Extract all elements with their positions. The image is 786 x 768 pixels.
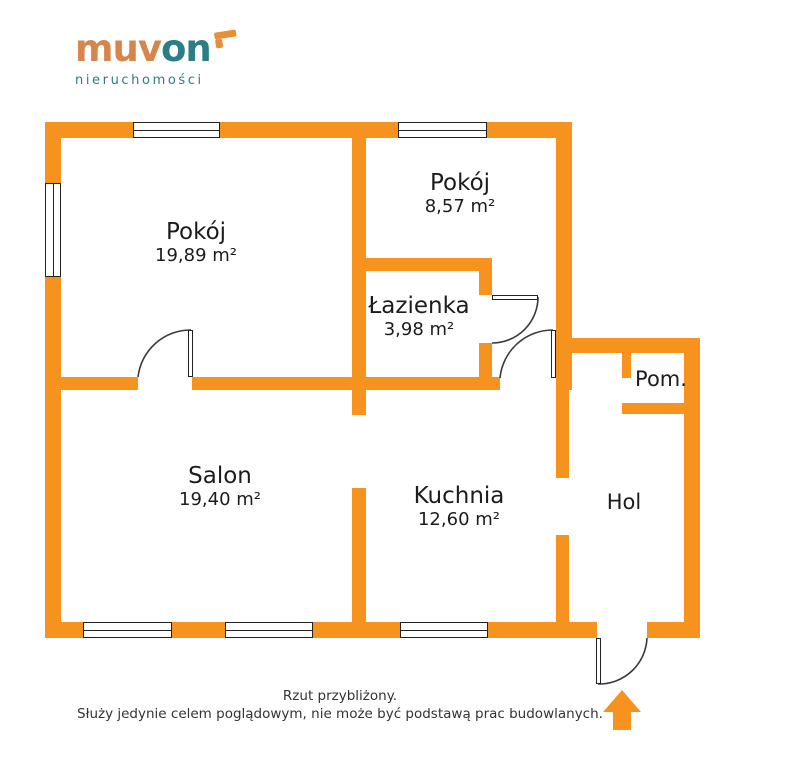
wall-bath-right-upper <box>479 258 492 295</box>
room-area: 19,40 m² <box>179 489 261 511</box>
room-area: 3,98 m² <box>368 319 469 341</box>
window-top-left <box>133 122 220 138</box>
window-top-right <box>398 122 487 138</box>
wall-hol-top <box>556 338 700 353</box>
window-bottom-1 <box>83 622 172 638</box>
room-label-pokoj-2: Pokój 8,57 m² <box>425 170 496 218</box>
disclaimer-line-1: Rzut przybliżony. <box>0 687 680 705</box>
room-area: 8,57 m² <box>425 196 496 218</box>
wall-kitchen-hol-upper <box>556 390 569 478</box>
wall-kitchen-hol-lower <box>556 535 569 622</box>
floor-plan: Pokój 19,89 m² Pokój 8,57 m² Łazienka 3,… <box>0 0 786 768</box>
wall-outer-top <box>45 122 572 138</box>
wall-pom-bottom <box>622 403 684 414</box>
door-arc-entrance <box>598 638 647 684</box>
wall-mid-horizontal-a <box>61 377 138 390</box>
room-name: Pokój <box>425 170 496 196</box>
door-leaf-kitchen <box>551 330 556 378</box>
door-leaf-entrance <box>596 638 601 684</box>
door-leaf-room1 <box>188 330 193 377</box>
room-label-pokoj-1: Pokój 19,89 m² <box>155 219 237 267</box>
wall-bath-top <box>352 258 492 271</box>
wall-pom-left-stub <box>622 353 631 378</box>
wall-salon-kitchen-stub <box>352 390 366 415</box>
floorplan-page: muvon nieruchomości <box>0 0 786 768</box>
room-area: 19,89 m² <box>155 245 237 267</box>
room-area: 12,60 m² <box>414 509 505 531</box>
disclaimer-line-2: Służy jedynie celem poglądowym, nie może… <box>0 705 680 723</box>
room-label-salon: Salon 19,40 m² <box>179 463 261 511</box>
room-name: Kuchnia <box>414 483 505 509</box>
wall-mid-horizontal-b <box>192 377 500 390</box>
room-name: Pom. <box>635 367 687 391</box>
room-label-lazienka: Łazienka 3,98 m² <box>368 293 469 341</box>
room-name: Salon <box>179 463 261 489</box>
window-left <box>45 183 61 277</box>
window-bottom-2 <box>225 622 313 638</box>
door-arc-room1 <box>138 330 191 377</box>
room-name: Hol <box>607 490 641 514</box>
door-arc-kitchen <box>500 330 553 378</box>
wall-salon-kitchen-low <box>352 488 366 622</box>
door-leaf-bathroom <box>492 295 538 300</box>
disclaimer: Rzut przybliżony. Służy jedynie celem po… <box>0 687 680 723</box>
door-arc-bathroom <box>492 297 538 343</box>
wall-bath-right-lower <box>479 343 492 390</box>
window-bottom-3 <box>400 622 488 638</box>
room-name: Pokój <box>155 219 237 245</box>
room-label-kuchnia: Kuchnia 12,60 m² <box>414 483 505 531</box>
room-label-hol: Hol <box>607 490 641 514</box>
room-name: Łazienka <box>368 293 469 319</box>
room-label-pom: Pom. <box>635 367 687 391</box>
